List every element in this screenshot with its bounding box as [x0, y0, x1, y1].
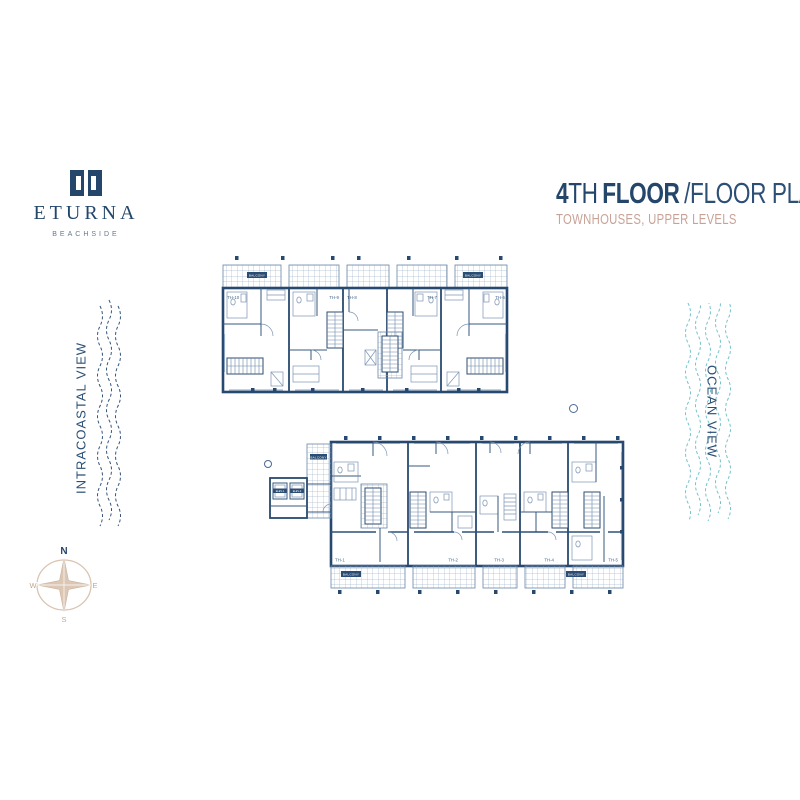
lower-plan-unit-dividers	[408, 442, 568, 566]
lower-plan-interiors	[331, 442, 623, 562]
compass-west-label: W	[29, 581, 37, 590]
balcony-tag: BALCONY	[343, 573, 359, 577]
balcony-tag: BALCONY	[249, 274, 265, 278]
title-floor-number: 4	[556, 178, 568, 210]
page-title: 4THFLOOR/FLOOR PLANS	[556, 179, 774, 209]
page-subtitle: TOWNHOUSES, UPPER LEVELS	[556, 212, 774, 228]
upper-plan-interiors	[223, 288, 507, 386]
lower-plan-elevator-wing: BALCONY ELEV-1 ELEV-2	[270, 444, 331, 518]
elevator-label: ELEV-2	[293, 490, 302, 493]
compass-icon: N W E S	[27, 543, 101, 625]
unit-label: TH-6	[495, 295, 505, 300]
walkway-tag: BALCONY	[310, 455, 326, 459]
unit-label: TH-9	[329, 295, 339, 300]
upper-plan-balconies: BALCONY BALCONY	[223, 265, 507, 288]
unit-label: TH-7	[427, 295, 437, 300]
brand-name: ETURNA	[20, 202, 152, 225]
lower-plan-balconies: BALCONY BALCONY	[331, 566, 623, 594]
title-bold: FLOOR	[602, 178, 679, 210]
page-title-block: 4THFLOOR/FLOOR PLANS TOWNHOUSES, UPPER L…	[556, 179, 774, 228]
unit-label: TH-5	[608, 558, 618, 563]
lower-plan-columns	[344, 436, 620, 440]
compass-south-label: S	[61, 615, 66, 624]
upper-plan-columns	[235, 256, 503, 260]
unit-label: TH-10	[227, 295, 240, 300]
title-light: /FLOOR PLANS	[684, 178, 800, 210]
unit-label: TH-1	[335, 558, 345, 563]
balcony-tag: BALCONY	[465, 274, 481, 278]
intracoastal-view-label: INTRACOASTAL VIEW	[70, 300, 92, 535]
upper-plan-outline	[223, 288, 507, 392]
unit-label: TH-4	[544, 558, 554, 563]
column-marker	[264, 460, 272, 468]
column-marker	[569, 404, 578, 413]
compass-north-label: N	[60, 546, 67, 557]
balcony-tag: BALCONY	[568, 573, 584, 577]
unit-label: TH-3	[494, 558, 504, 563]
compass-east-label: E	[92, 581, 97, 590]
intracoastal-waves-icon	[96, 296, 124, 538]
brand-block: ETURNA BEACHSIDE	[20, 168, 152, 238]
unit-label: TH-8	[347, 295, 357, 300]
upper-plan-unit-dividers	[289, 288, 441, 392]
ocean-view-label: OCEAN VIEW	[701, 306, 723, 518]
brand-logo-icon	[68, 168, 104, 198]
unit-label: TH-2	[448, 558, 458, 563]
upper-plan-unit-labels: TH-10 TH-9 TH-8 TH-7 TH-6	[227, 295, 506, 300]
floor-plan-sheet: ETURNA BEACHSIDE 4THFLOOR/FLOOR PLANS TO…	[0, 0, 800, 800]
brand-tagline: BEACHSIDE	[20, 231, 152, 238]
title-floor-suffix: TH	[568, 178, 597, 210]
floor-plan-upper: BALCONY BALCONY	[215, 254, 515, 402]
floor-plan-lower: BALCONY ELEV-1 ELEV-2	[268, 436, 648, 596]
elevator-label: ELEV-1	[276, 490, 285, 493]
